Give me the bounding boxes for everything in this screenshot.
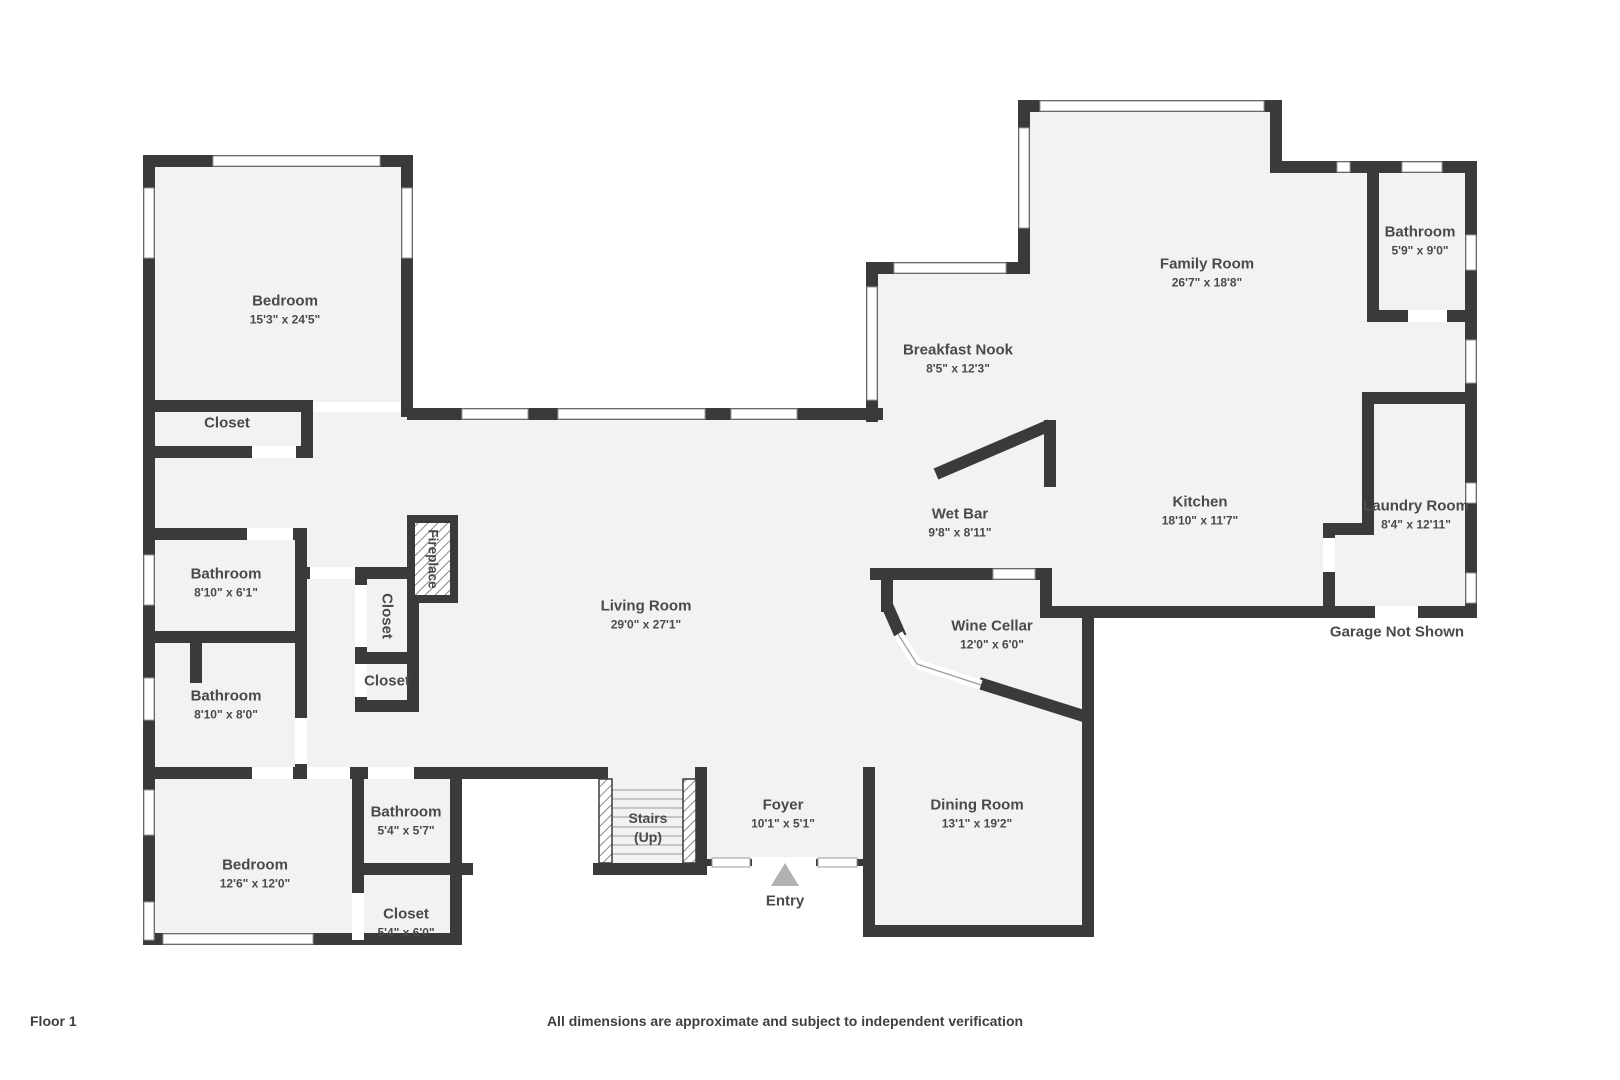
floor-plan-drawing xyxy=(0,0,1620,1080)
floor-label: Floor 1 xyxy=(30,1013,77,1029)
stair-rail-left xyxy=(599,779,612,863)
fireplace-shape xyxy=(407,515,458,603)
floor-fill xyxy=(149,110,1471,939)
floor-plan-page: { "colors": { "wall": "#3a3a3c", "floor"… xyxy=(0,0,1620,1080)
disclaimer: All dimensions are approximate and subje… xyxy=(547,1013,1023,1029)
stair-rail-right xyxy=(683,779,696,863)
